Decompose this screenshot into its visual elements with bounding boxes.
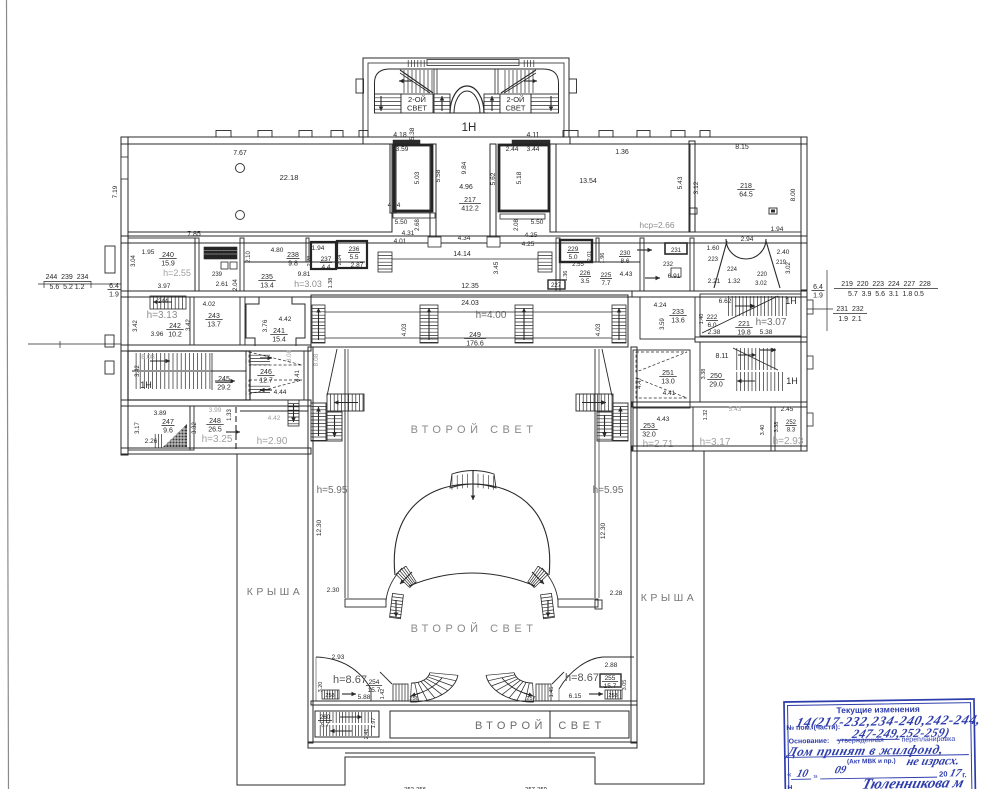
- svg-text:СВЕТ: СВЕТ: [505, 104, 525, 113]
- svg-text:Н: Н: [787, 785, 792, 789]
- svg-text:КРЫША: КРЫША: [641, 592, 698, 604]
- svg-text:СВЕТ: СВЕТ: [407, 104, 427, 113]
- svg-text:h=5.95: h=5.95: [317, 485, 348, 496]
- svg-text:4.43: 4.43: [657, 416, 670, 423]
- svg-text:218: 218: [740, 183, 752, 190]
- svg-text:3.42: 3.42: [135, 365, 141, 377]
- svg-text:243: 243: [208, 313, 220, 320]
- svg-text:3.59: 3.59: [660, 318, 666, 330]
- svg-text:4.41: 4.41: [295, 370, 301, 382]
- svg-text:13.54: 13.54: [579, 178, 597, 185]
- svg-text:3.97: 3.97: [158, 283, 171, 290]
- svg-text:не израсх.: не израсх.: [905, 753, 961, 768]
- svg-text:4.41: 4.41: [663, 390, 676, 397]
- svg-text:64.5: 64.5: [739, 192, 753, 199]
- svg-text:9.7: 9.7: [321, 723, 330, 729]
- svg-text:235: 235: [261, 274, 273, 281]
- svg-text:219 220 223 224 227 228: 219 220 223 224 227 228: [841, 281, 931, 288]
- svg-text:15.7: 15.7: [368, 687, 381, 694]
- svg-text:231 232: 231 232: [836, 306, 863, 313]
- svg-text:1.94: 1.94: [771, 226, 784, 233]
- svg-text:h=8.67: h=8.67: [333, 674, 367, 686]
- svg-text:1Н: 1Н: [140, 380, 152, 390]
- svg-text:1.32: 1.32: [703, 410, 709, 421]
- svg-text:2.93: 2.93: [332, 654, 345, 661]
- svg-text:1.33: 1.33: [227, 409, 233, 421]
- svg-text:5.43: 5.43: [677, 176, 684, 189]
- svg-text:223: 223: [708, 257, 719, 263]
- svg-text:1.97: 1.97: [371, 718, 377, 729]
- svg-text:5.0: 5.0: [568, 254, 577, 261]
- svg-text:5.50: 5.50: [395, 219, 408, 226]
- svg-text:3.02: 3.02: [755, 281, 767, 287]
- svg-text:2.40: 2.40: [777, 249, 790, 256]
- svg-text:19.8: 19.8: [737, 330, 751, 337]
- svg-text:4.03: 4.03: [595, 323, 602, 336]
- svg-text:2.30: 2.30: [327, 587, 340, 594]
- svg-text:2.10: 2.10: [246, 251, 252, 263]
- svg-text:1.42: 1.42: [380, 689, 386, 700]
- svg-text:246: 246: [260, 369, 272, 376]
- svg-text:2.78: 2.78: [307, 256, 313, 267]
- svg-text:5.03: 5.03: [414, 171, 421, 184]
- svg-text:8.6: 8.6: [620, 258, 629, 265]
- svg-text:hср=2.66: hср=2.66: [639, 220, 674, 230]
- svg-text:2.01: 2.01: [587, 251, 593, 262]
- svg-text:4.18: 4.18: [393, 132, 407, 139]
- svg-text:5.88: 5.88: [358, 694, 371, 701]
- svg-text:1.38: 1.38: [328, 278, 334, 289]
- svg-text:29.0: 29.0: [709, 382, 723, 389]
- svg-text:245: 245: [218, 376, 230, 383]
- svg-text:9.84: 9.84: [461, 161, 468, 174]
- svg-text:1.45: 1.45: [549, 687, 555, 698]
- svg-text:(Акт МВК и пр.): (Акт МВК и пр.): [847, 758, 896, 766]
- svg-text:3.05: 3.05: [622, 680, 628, 691]
- svg-text:h=3.07: h=3.07: [756, 317, 787, 328]
- svg-text:h=3.03: h=3.03: [294, 279, 322, 289]
- svg-text:412.2: 412.2: [461, 206, 479, 213]
- svg-text:3.76: 3.76: [262, 319, 269, 332]
- svg-text:1Н: 1Н: [786, 376, 798, 386]
- svg-text:8.3: 8.3: [787, 428, 796, 434]
- svg-text:3.44: 3.44: [527, 146, 540, 153]
- svg-text:5.5: 5.5: [349, 254, 358, 261]
- svg-text:1.94: 1.94: [312, 245, 325, 252]
- svg-text:4.24: 4.24: [654, 302, 667, 309]
- svg-text:13.4: 13.4: [260, 283, 274, 290]
- svg-text:253: 253: [643, 423, 655, 430]
- svg-text:231: 231: [671, 248, 682, 254]
- svg-text:219: 219: [776, 260, 787, 266]
- svg-text:2.87: 2.87: [351, 262, 364, 269]
- svg-text:8.00: 8.00: [790, 188, 797, 201]
- svg-text:h=2.90: h=2.90: [257, 436, 288, 447]
- svg-text:242: 242: [169, 323, 181, 330]
- svg-text:4.54: 4.54: [388, 202, 401, 209]
- svg-text:«: «: [787, 770, 792, 779]
- svg-text:6.91: 6.91: [668, 273, 681, 280]
- svg-text:3.02: 3.02: [786, 262, 792, 274]
- svg-text:258: 258: [325, 693, 334, 699]
- svg-text:8.08: 8.08: [141, 354, 155, 361]
- svg-text:24.03: 24.03: [461, 300, 479, 307]
- svg-text:232: 232: [663, 262, 674, 268]
- svg-text:СВЕТ: СВЕТ: [558, 720, 605, 732]
- svg-text:2.55: 2.55: [572, 262, 584, 268]
- svg-text:244: 244: [158, 299, 169, 305]
- svg-text:4.31: 4.31: [402, 230, 415, 237]
- svg-text:3.20: 3.20: [318, 682, 324, 693]
- svg-text:12.30: 12.30: [600, 522, 607, 539]
- svg-text:238: 238: [287, 252, 299, 259]
- svg-text:3.99: 3.99: [209, 407, 222, 414]
- svg-text:3.42: 3.42: [186, 319, 192, 331]
- svg-text:250: 250: [710, 373, 722, 380]
- svg-text:15.9: 15.9: [161, 261, 175, 268]
- svg-text:2.41: 2.41: [364, 729, 370, 740]
- svg-text:2.08: 2.08: [514, 219, 520, 231]
- svg-text:3.5: 3.5: [580, 278, 589, 285]
- svg-text:1.9 2.1: 1.9 2.1: [838, 316, 861, 323]
- svg-text:4.25: 4.25: [522, 241, 535, 248]
- svg-text:5.18: 5.18: [516, 171, 523, 184]
- svg-text:247: 247: [162, 419, 174, 426]
- svg-text:3.38: 3.38: [774, 422, 780, 433]
- svg-text:26.5: 26.5: [208, 427, 222, 434]
- svg-text:7.7: 7.7: [601, 280, 610, 287]
- svg-text:236: 236: [349, 246, 360, 253]
- svg-text:220: 220: [757, 272, 768, 278]
- svg-text:2.28: 2.28: [610, 590, 623, 597]
- svg-text:239: 239: [212, 272, 223, 278]
- svg-text:7.19: 7.19: [112, 185, 119, 198]
- svg-text:226: 226: [580, 270, 591, 277]
- svg-text:2.24: 2.24: [337, 255, 343, 266]
- svg-text:230: 230: [620, 250, 631, 257]
- svg-text:3.12: 3.12: [693, 181, 700, 194]
- svg-text:15.4: 15.4: [272, 337, 286, 344]
- svg-text:2.04: 2.04: [233, 279, 239, 291]
- svg-text:13.7: 13.7: [207, 322, 221, 329]
- svg-text:h=5.95: h=5.95: [593, 485, 624, 496]
- svg-text:2.61: 2.61: [216, 281, 229, 288]
- svg-text:3.04: 3.04: [131, 255, 137, 267]
- svg-text:4.42: 4.42: [268, 415, 281, 422]
- svg-text:12.7: 12.7: [259, 378, 273, 385]
- svg-text:h=3.13: h=3.13: [147, 310, 178, 321]
- svg-text:176.6: 176.6: [466, 341, 484, 348]
- svg-text:4.11: 4.11: [526, 132, 539, 139]
- svg-text:9.81: 9.81: [298, 271, 311, 278]
- svg-text:1Н: 1Н: [785, 296, 797, 306]
- svg-text:2.45: 2.45: [781, 406, 794, 413]
- svg-text:227: 227: [551, 283, 562, 289]
- svg-text:5.7 3.9 5.6 3.1 1.8 0.5: 5.7 3.9 5.6 3.1 1.8 0.5: [848, 291, 924, 298]
- svg-text:6.4: 6.4: [813, 284, 823, 291]
- svg-text:6.15: 6.15: [569, 693, 582, 700]
- svg-text:3.40: 3.40: [760, 425, 766, 436]
- svg-text:255: 255: [605, 675, 616, 682]
- svg-text:ВТОРОЙ СВЕТ: ВТОРОЙ СВЕТ: [411, 423, 538, 436]
- svg-text:h=2.71: h=2.71: [643, 439, 674, 450]
- svg-text:22.18: 22.18: [280, 173, 299, 182]
- svg-text:8.11: 8.11: [715, 353, 728, 360]
- svg-text:2.94: 2.94: [741, 236, 754, 243]
- svg-text:h=8.67: h=8.67: [565, 672, 599, 684]
- svg-text:4.96: 4.96: [459, 184, 473, 191]
- svg-text:258: 258: [608, 693, 617, 699]
- svg-text:2.68: 2.68: [415, 219, 421, 231]
- svg-text:13.6: 13.6: [671, 318, 685, 325]
- svg-text:254: 254: [369, 679, 380, 686]
- svg-text:4.02: 4.02: [203, 301, 216, 308]
- svg-text:1.60: 1.60: [707, 245, 720, 252]
- svg-text:32.0: 32.0: [642, 432, 656, 439]
- svg-text:244 239 234: 244 239 234: [46, 274, 89, 281]
- svg-text:224: 224: [727, 267, 738, 273]
- svg-text:5.62: 5.62: [490, 172, 497, 185]
- svg-text:4.43: 4.43: [620, 271, 633, 278]
- svg-text:222: 222: [707, 314, 718, 321]
- svg-text:2.26: 2.26: [145, 438, 158, 445]
- svg-text:4.34: 4.34: [458, 235, 471, 242]
- svg-text:h=3.25: h=3.25: [202, 434, 233, 445]
- svg-text:3.42: 3.42: [133, 320, 139, 332]
- svg-text:7.67: 7.67: [233, 150, 247, 157]
- svg-text:ВТОРОЙ СВЕТ: ВТОРОЙ СВЕТ: [411, 622, 538, 635]
- svg-text:2.44: 2.44: [506, 146, 519, 153]
- svg-text:2.88: 2.88: [605, 662, 618, 669]
- svg-text:7.85: 7.85: [187, 231, 201, 238]
- svg-text:29.2: 29.2: [217, 385, 231, 392]
- svg-text:5.38: 5.38: [409, 127, 416, 140]
- svg-text:221: 221: [738, 321, 750, 328]
- svg-text:6.4: 6.4: [109, 283, 119, 290]
- svg-text:h=2.93: h=2.93: [773, 436, 804, 447]
- svg-text:5.43: 5.43: [729, 406, 742, 413]
- svg-text:12.35: 12.35: [461, 283, 479, 290]
- svg-text:13.0: 13.0: [661, 379, 675, 386]
- svg-text:3.96: 3.96: [151, 331, 164, 338]
- svg-text:12.30: 12.30: [316, 519, 323, 536]
- svg-text:2.38: 2.38: [708, 329, 721, 336]
- svg-text:240: 240: [162, 252, 174, 259]
- svg-text:Тюленникова м: Тюленникова м: [860, 774, 966, 789]
- svg-text:ВТОРОЙ: ВТОРОЙ: [475, 719, 547, 732]
- svg-text:1Н: 1Н: [462, 122, 477, 134]
- svg-text:4.01: 4.01: [394, 238, 407, 245]
- svg-text:2.21: 2.21: [708, 278, 721, 285]
- svg-text:8.08: 8.08: [287, 350, 293, 362]
- svg-text:4.80: 4.80: [271, 247, 284, 254]
- svg-text:3.32: 3.32: [192, 422, 198, 434]
- svg-text:4.4: 4.4: [321, 264, 330, 271]
- svg-text:4.47: 4.47: [637, 377, 643, 389]
- svg-text:3.89: 3.89: [154, 410, 167, 417]
- svg-text:3.59: 3.59: [396, 146, 409, 153]
- svg-text:h=2.55: h=2.55: [163, 268, 191, 278]
- svg-text:5.50: 5.50: [531, 219, 544, 226]
- svg-text:1.32: 1.32: [728, 278, 741, 285]
- svg-text:8.08: 8.08: [313, 353, 320, 366]
- svg-text:КРЫША: КРЫША: [247, 586, 304, 598]
- svg-text:229: 229: [568, 246, 579, 253]
- svg-text:241: 241: [273, 328, 285, 335]
- svg-text:5.6 5.2 1.2: 5.6 5.2 1.2: [49, 284, 84, 291]
- svg-text:233: 233: [672, 309, 684, 316]
- svg-text:»: »: [813, 771, 818, 780]
- svg-text:251: 251: [662, 370, 674, 377]
- svg-text:6.62: 6.62: [719, 298, 732, 305]
- svg-text:3.17: 3.17: [135, 422, 141, 434]
- svg-text:1.95: 1.95: [142, 249, 155, 256]
- svg-text:3.38: 3.38: [701, 369, 707, 380]
- svg-text:5.38: 5.38: [760, 329, 773, 336]
- svg-text:4.42: 4.42: [279, 316, 292, 323]
- svg-text:1.9: 1.9: [109, 292, 119, 299]
- svg-text:4.44: 4.44: [274, 389, 287, 396]
- svg-text:9.6: 9.6: [163, 428, 173, 435]
- svg-text:10.2: 10.2: [168, 332, 182, 339]
- svg-text:1.9: 1.9: [813, 293, 823, 300]
- svg-text:3.45: 3.45: [493, 261, 500, 274]
- svg-text:4.03: 4.03: [401, 323, 408, 336]
- svg-text:1.36: 1.36: [615, 149, 629, 156]
- svg-text:8.15: 8.15: [735, 144, 749, 151]
- svg-text:14.14: 14.14: [453, 251, 471, 258]
- svg-text:248: 248: [209, 418, 221, 425]
- svg-text:225: 225: [601, 272, 612, 279]
- svg-text:217: 217: [464, 197, 476, 204]
